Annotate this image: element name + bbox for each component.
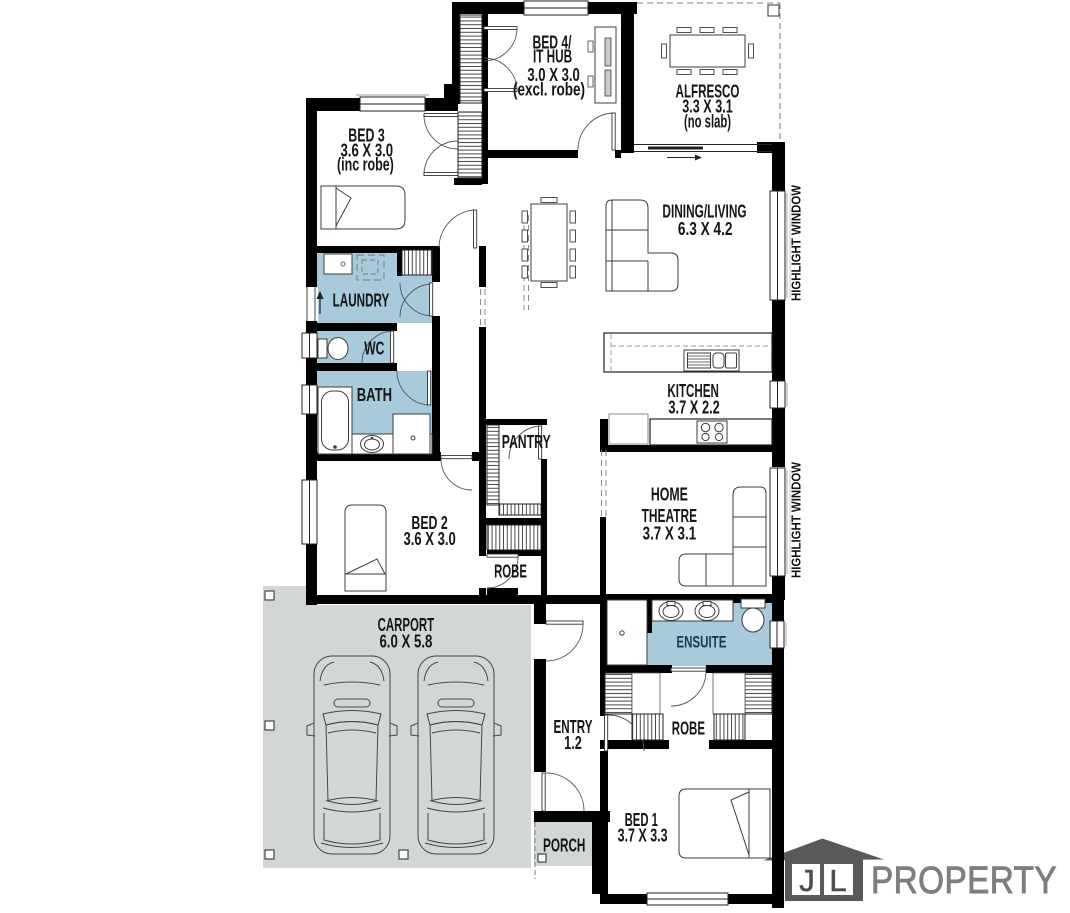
svg-text:L: L: [829, 863, 846, 898]
svg-text:ROBE: ROBE: [672, 718, 705, 739]
svg-text:6.0 X 5.8: 6.0 X 5.8: [379, 631, 432, 652]
svg-text:LAUNDRY: LAUNDRY: [333, 290, 390, 311]
svg-text:(no slab): (no slab): [684, 111, 731, 132]
svg-text:PROPERTY: PROPERTY: [871, 860, 1057, 902]
svg-text:PANTRY: PANTRY: [502, 431, 551, 452]
svg-text:BATH: BATH: [357, 384, 392, 405]
svg-text:3.7 X 3.3: 3.7 X 3.3: [618, 824, 668, 845]
svg-text:ROBE: ROBE: [494, 561, 527, 582]
svg-text:(excl. robe): (excl. robe): [513, 79, 585, 100]
svg-text:HOME: HOME: [651, 484, 688, 505]
svg-text:HIGHLIGHT WINDOW: HIGHLIGHT WINDOW: [789, 462, 804, 578]
svg-text:HIGHLIGHT WINDOW: HIGHLIGHT WINDOW: [789, 185, 804, 301]
svg-text:3.6 X 3.0: 3.6 X 3.0: [404, 528, 456, 549]
svg-text:WC: WC: [364, 338, 384, 359]
svg-text:(inc robe): (inc robe): [337, 154, 394, 175]
svg-text:1.2: 1.2: [564, 732, 582, 753]
svg-text:PORCH: PORCH: [543, 835, 585, 856]
svg-text:ENSUITE: ENSUITE: [676, 633, 726, 652]
svg-text:3.7 X 3.1: 3.7 X 3.1: [643, 523, 697, 544]
svg-text:3.7 X 2.2: 3.7 X 2.2: [668, 397, 719, 418]
svg-text:6.3 X 4.2: 6.3 X 4.2: [678, 218, 733, 239]
svg-text:J: J: [799, 863, 815, 898]
